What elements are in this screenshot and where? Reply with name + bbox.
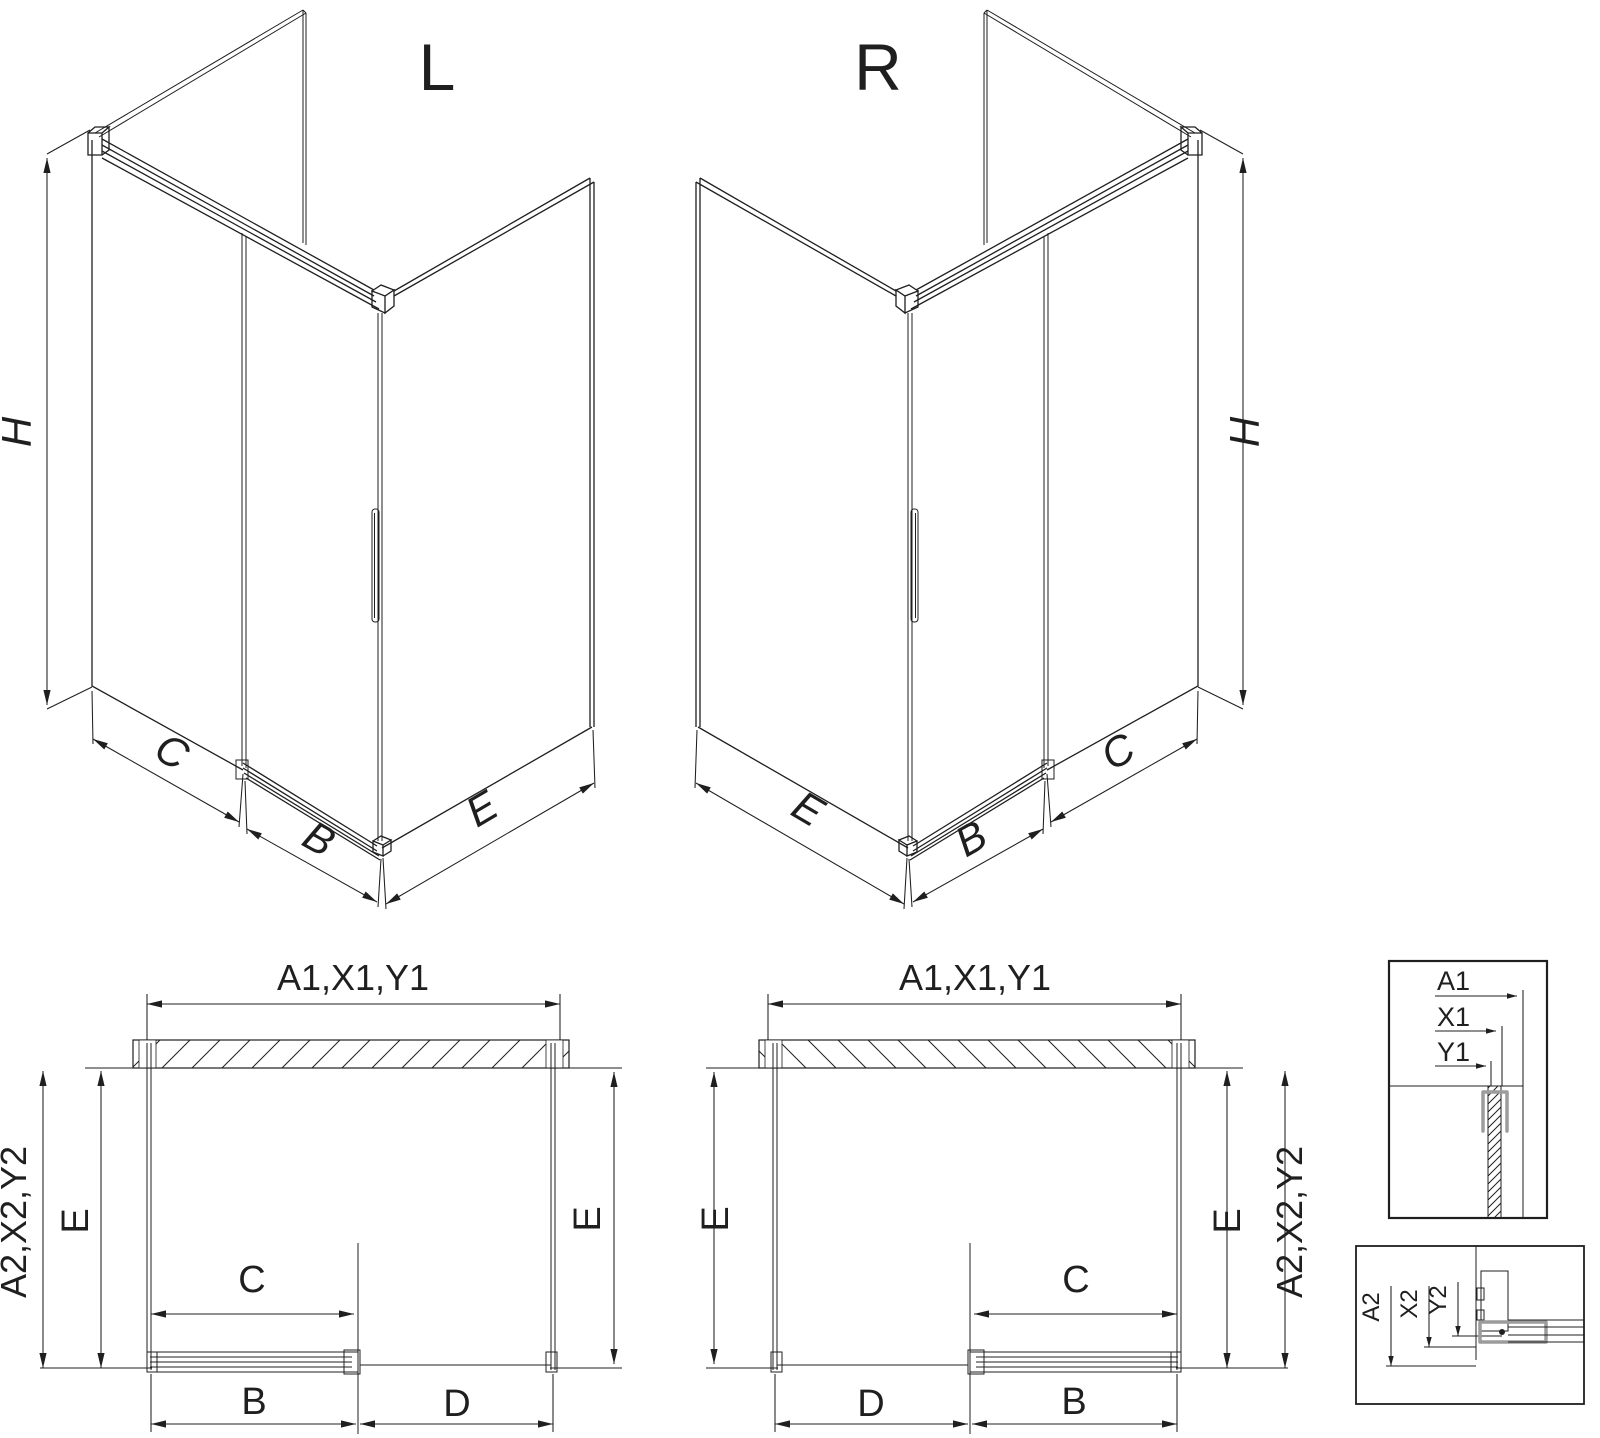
iso-left-dim-H: H [0,416,40,447]
detail-label-X2: X2 [1396,1289,1423,1318]
plan-left-dim-D: D [443,1383,470,1425]
detail-label-A2: A2 [1358,1292,1385,1321]
wall-strip-hatched [1488,1086,1501,1218]
detail-label-Y2: Y2 [1425,1285,1452,1314]
iso-left-dim-B: B [295,811,343,866]
arrowhead [1426,1337,1431,1347]
roller-axle-dot [1499,1329,1505,1335]
plan-right-dim-E-far: E [695,1206,737,1231]
detail-box-bottom-border [1356,1246,1584,1404]
plan-left-dim-E-near: E [55,1208,97,1233]
plan-right-dim-C: C [1062,1259,1089,1301]
detail-label-A1: A1 [1437,966,1470,996]
plan-left-dim-B: B [241,1381,266,1423]
iso-left-dim-C: C [147,723,197,779]
iso-right-dim-B: B [947,811,995,866]
arrowhead [1486,1028,1496,1033]
plan-right-dim-D: D [857,1383,884,1425]
detail-box-bottom [1356,1246,1584,1404]
plan-left-dim-A2X2Y2: A2,X2,Y2 [0,1146,34,1298]
iso-right-dim-H: H [1221,416,1268,447]
plan-right-dim-A2X2Y2: A2,X2,Y2 [1269,1146,1310,1298]
arrowhead [1455,1326,1460,1336]
label-variant-L: L [419,30,456,104]
iso-view-left [43,10,595,909]
detail-box-top [1389,961,1547,1218]
iso-view-right [695,10,1247,909]
arrowhead [1476,1063,1486,1068]
plan-left-dim-E-far: E [567,1206,609,1231]
iso-left-dim-E: E [458,781,507,836]
plan-left-dim-C: C [238,1259,265,1301]
plan-view-right [706,994,1289,1434]
iso-right-dim-E: E [784,781,833,836]
plan-right-dim-E-near: E [1207,1208,1249,1233]
arrowhead [1388,1356,1393,1366]
arrowhead [1507,993,1517,998]
plan-right-dim-B: B [1061,1381,1086,1423]
plan-left-dim-A1X1Y1: A1,X1,Y1 [277,957,429,998]
technical-drawing-canvas: L R H C B E H C B E A1,X1,Y1 A2,X2,Y2 E … [0,0,1600,1438]
plan-right-dim-A1X1Y1: A1,X1,Y1 [899,957,1051,998]
detail-label-Y1: Y1 [1437,1037,1470,1067]
drawing-sheet: L R H C B E H C B E A1,X1,Y1 A2,X2,Y2 E … [0,0,1600,1438]
iso-right-dim-C: C [1093,723,1143,779]
label-variant-R: R [854,30,902,104]
detail-label-X1: X1 [1437,1002,1470,1032]
track-profile-gray [1480,1322,1546,1342]
labels: L R H C B E H C B E A1,X1,Y1 A2,X2,Y2 E … [0,30,1470,1425]
plan-view-left [39,994,622,1434]
